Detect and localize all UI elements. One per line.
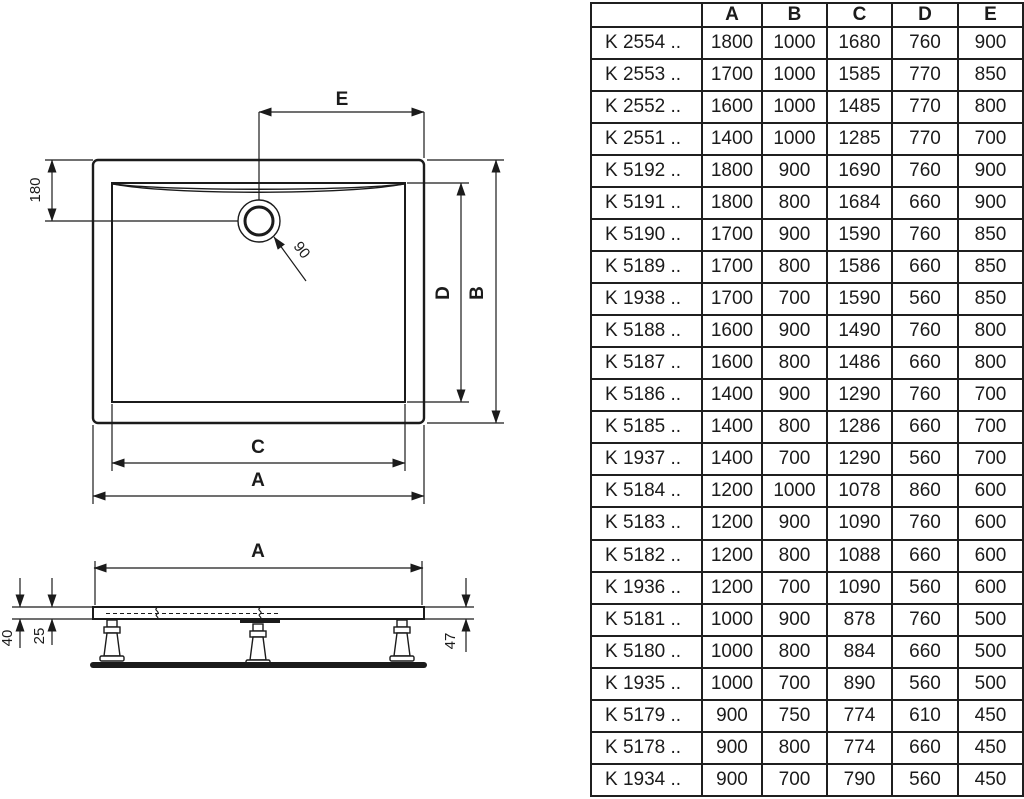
value-cell: 774 — [827, 732, 892, 764]
value-cell: 900 — [762, 155, 827, 187]
model-cell: K 1934 .. — [591, 764, 702, 796]
value-cell: 760 — [892, 219, 958, 251]
value-cell: 760 — [892, 604, 958, 636]
value-cell: 800 — [762, 636, 827, 668]
table-row: K 5179 ..900750774610450 — [591, 700, 1023, 732]
value-cell: 790 — [827, 764, 892, 796]
value-cell: 1690 — [827, 155, 892, 187]
dim-label-180: 180 — [27, 177, 44, 202]
foot-left — [100, 620, 124, 661]
value-cell: 560 — [892, 283, 958, 315]
value-cell: 884 — [827, 636, 892, 668]
column-header: E — [958, 3, 1023, 27]
value-cell: 1700 — [702, 283, 762, 315]
corner-header-cell — [591, 3, 702, 27]
foot-right — [390, 620, 414, 661]
value-cell: 1590 — [827, 283, 892, 315]
model-cell: K 2551 .. — [591, 123, 702, 155]
technical-drawing: E 180 90 D B C — [0, 0, 588, 799]
value-cell: 1290 — [827, 443, 892, 475]
value-cell: 1285 — [827, 123, 892, 155]
value-cell: 860 — [892, 475, 958, 507]
table-row: K 1937 ..14007001290560700 — [591, 443, 1023, 475]
value-cell: 500 — [958, 636, 1023, 668]
table-body: K 2554 ..180010001680760900K 2553 ..1700… — [591, 27, 1023, 796]
table-row: K 5189 ..17008001586660850 — [591, 251, 1023, 283]
value-cell: 1680 — [827, 27, 892, 59]
side-view: A 40 25 — [0, 541, 474, 668]
value-cell: 800 — [762, 411, 827, 443]
model-cell: K 5179 .. — [591, 700, 702, 732]
value-cell: 760 — [892, 155, 958, 187]
column-header: B — [762, 3, 827, 27]
drain-outlet — [240, 619, 280, 623]
value-cell: 760 — [892, 315, 958, 347]
value-cell: 1700 — [702, 219, 762, 251]
value-cell: 700 — [762, 764, 827, 796]
model-cell: K 5183 .. — [591, 507, 702, 539]
value-cell: 850 — [958, 59, 1023, 91]
value-cell: 770 — [892, 91, 958, 123]
model-cell: K 5187 .. — [591, 347, 702, 379]
model-cell: K 1936 .. — [591, 572, 702, 604]
table-row: K 5183 ..12009001090760600 — [591, 507, 1023, 539]
value-cell: 1400 — [702, 411, 762, 443]
value-cell: 500 — [958, 668, 1023, 700]
value-cell: 1485 — [827, 91, 892, 123]
value-cell: 700 — [958, 123, 1023, 155]
page: E 180 90 D B C — [0, 0, 1024, 799]
value-cell: 450 — [958, 764, 1023, 796]
value-cell: 700 — [762, 443, 827, 475]
value-cell: 1078 — [827, 475, 892, 507]
value-cell: 900 — [702, 732, 762, 764]
value-cell: 1000 — [762, 475, 827, 507]
value-cell: 1400 — [702, 379, 762, 411]
table-row: K 2552 ..160010001485770800 — [591, 91, 1023, 123]
value-cell: 560 — [892, 764, 958, 796]
value-cell: 1000 — [762, 59, 827, 91]
value-cell: 750 — [762, 700, 827, 732]
value-cell: 660 — [892, 411, 958, 443]
dim-label-A-side: A — [251, 541, 265, 562]
model-cell: K 1935 .. — [591, 668, 702, 700]
table-row: K 1938 ..17007001590560850 — [591, 283, 1023, 315]
value-cell: 700 — [762, 668, 827, 700]
value-cell: 1200 — [702, 572, 762, 604]
value-cell: 660 — [892, 732, 958, 764]
model-cell: K 5188 .. — [591, 315, 702, 347]
table-row: K 5180 ..1000800884660500 — [591, 636, 1023, 668]
value-cell: 600 — [958, 475, 1023, 507]
header-row: ABCDE — [591, 3, 1023, 27]
value-cell: 1000 — [762, 27, 827, 59]
value-cell: 800 — [762, 347, 827, 379]
dim-label-25: 25 — [31, 628, 48, 645]
value-cell: 700 — [762, 572, 827, 604]
value-cell: 800 — [762, 732, 827, 764]
value-cell: 850 — [958, 219, 1023, 251]
value-cell: 1600 — [702, 347, 762, 379]
value-cell: 770 — [892, 123, 958, 155]
value-cell: 1090 — [827, 572, 892, 604]
value-cell: 774 — [827, 700, 892, 732]
model-cell: K 5192 .. — [591, 155, 702, 187]
table-row: K 2553 ..170010001585770850 — [591, 59, 1023, 91]
value-cell: 600 — [958, 507, 1023, 539]
value-cell: 660 — [892, 251, 958, 283]
table-row: K 5187 ..16008001486660800 — [591, 347, 1023, 379]
value-cell: 660 — [892, 540, 958, 572]
value-cell: 760 — [892, 379, 958, 411]
table-row: K 5184 ..120010001078860600 — [591, 475, 1023, 507]
table-row: K 5181 ..1000900878760500 — [591, 604, 1023, 636]
value-cell: 1090 — [827, 507, 892, 539]
value-cell: 900 — [702, 700, 762, 732]
value-cell: 560 — [892, 443, 958, 475]
dim-label-A: A — [251, 470, 265, 491]
value-cell: 760 — [892, 507, 958, 539]
value-cell: 1200 — [702, 540, 762, 572]
foot-center — [246, 624, 270, 665]
value-cell: 700 — [762, 283, 827, 315]
table-row: K 2554 ..180010001680760900 — [591, 27, 1023, 59]
model-cell: K 5186 .. — [591, 379, 702, 411]
value-cell: 900 — [762, 315, 827, 347]
value-cell: 1585 — [827, 59, 892, 91]
value-cell: 700 — [958, 411, 1023, 443]
model-cell: K 2553 .. — [591, 59, 702, 91]
value-cell: 1800 — [702, 27, 762, 59]
model-cell: K 5182 .. — [591, 540, 702, 572]
column-header: D — [892, 3, 958, 27]
table-row: K 5192 ..18009001690760900 — [591, 155, 1023, 187]
value-cell: 1400 — [702, 443, 762, 475]
table-row: K 1936 ..12007001090560600 — [591, 572, 1023, 604]
table-row: K 5178 ..900800774660450 — [591, 732, 1023, 764]
value-cell: 1088 — [827, 540, 892, 572]
value-cell: 800 — [958, 315, 1023, 347]
value-cell: 900 — [958, 187, 1023, 219]
value-cell: 900 — [762, 379, 827, 411]
model-cell: K 1938 .. — [591, 283, 702, 315]
value-cell: 660 — [892, 187, 958, 219]
value-cell: 700 — [958, 379, 1023, 411]
value-cell: 1000 — [702, 604, 762, 636]
dim-label-E: E — [336, 89, 349, 110]
value-cell: 1000 — [762, 91, 827, 123]
table-row: K 5185 ..14008001286660700 — [591, 411, 1023, 443]
value-cell: 1200 — [702, 475, 762, 507]
table-row: K 5190 ..17009001590760850 — [591, 219, 1023, 251]
dim-label-B: B — [467, 286, 488, 300]
value-cell: 1490 — [827, 315, 892, 347]
model-cell: K 2554 .. — [591, 27, 702, 59]
model-cell: K 5180 .. — [591, 636, 702, 668]
value-cell: 850 — [958, 283, 1023, 315]
value-cell: 600 — [958, 572, 1023, 604]
value-cell: 900 — [762, 604, 827, 636]
model-cell: K 5184 .. — [591, 475, 702, 507]
value-cell: 610 — [892, 700, 958, 732]
value-cell: 1290 — [827, 379, 892, 411]
value-cell: 878 — [827, 604, 892, 636]
value-cell: 1684 — [827, 187, 892, 219]
table-row: K 5191 ..18008001684660900 — [591, 187, 1023, 219]
value-cell: 900 — [958, 155, 1023, 187]
value-cell: 800 — [762, 251, 827, 283]
table-row: K 5188 ..16009001490760800 — [591, 315, 1023, 347]
value-cell: 1000 — [702, 668, 762, 700]
value-cell: 900 — [958, 27, 1023, 59]
table-row: K 2551 ..140010001285770700 — [591, 123, 1023, 155]
value-cell: 1200 — [702, 507, 762, 539]
value-cell: 900 — [762, 219, 827, 251]
value-cell: 760 — [892, 27, 958, 59]
value-cell: 1800 — [702, 187, 762, 219]
value-cell: 600 — [958, 540, 1023, 572]
value-cell: 660 — [892, 636, 958, 668]
value-cell: 800 — [958, 347, 1023, 379]
value-cell: 450 — [958, 700, 1023, 732]
model-cell: K 5190 .. — [591, 219, 702, 251]
model-cell: K 5178 .. — [591, 732, 702, 764]
value-cell: 660 — [892, 347, 958, 379]
value-cell: 560 — [892, 668, 958, 700]
top-view: E 180 90 D B C — [27, 89, 504, 504]
model-cell: K 5181 .. — [591, 604, 702, 636]
value-cell: 1700 — [702, 251, 762, 283]
value-cell: 1590 — [827, 219, 892, 251]
model-cell: K 5189 .. — [591, 251, 702, 283]
value-cell: 1600 — [702, 91, 762, 123]
value-cell: 890 — [827, 668, 892, 700]
floor-bar — [90, 662, 427, 668]
value-cell: 1600 — [702, 315, 762, 347]
value-cell: 1486 — [827, 347, 892, 379]
dim-label-C: C — [251, 437, 265, 458]
value-cell: 850 — [958, 251, 1023, 283]
model-cell: K 5185 .. — [591, 411, 702, 443]
value-cell: 1000 — [762, 123, 827, 155]
spec-table: ABCDE K 2554 ..180010001680760900K 2553 … — [590, 2, 1024, 797]
dim-label-40: 40 — [0, 630, 16, 647]
value-cell: 560 — [892, 572, 958, 604]
table-row: K 5186 ..14009001290760700 — [591, 379, 1023, 411]
value-cell: 700 — [958, 443, 1023, 475]
value-cell: 450 — [958, 732, 1023, 764]
value-cell: 1800 — [702, 155, 762, 187]
dim-label-47: 47 — [442, 633, 459, 650]
value-cell: 800 — [762, 187, 827, 219]
table-row: K 5182 ..12008001088660600 — [591, 540, 1023, 572]
column-header: C — [827, 3, 892, 27]
value-cell: 1586 — [827, 251, 892, 283]
column-header: A — [702, 3, 762, 27]
value-cell: 1400 — [702, 123, 762, 155]
value-cell: 800 — [958, 91, 1023, 123]
model-cell: K 5191 .. — [591, 187, 702, 219]
value-cell: 1286 — [827, 411, 892, 443]
table-row: K 1934 ..900700790560450 — [591, 764, 1023, 796]
value-cell: 900 — [762, 507, 827, 539]
value-cell: 900 — [702, 764, 762, 796]
model-cell: K 1937 .. — [591, 443, 702, 475]
dim-label-D: D — [433, 286, 454, 300]
value-cell: 500 — [958, 604, 1023, 636]
table-row: K 1935 ..1000700890560500 — [591, 668, 1023, 700]
value-cell: 1700 — [702, 59, 762, 91]
value-cell: 800 — [762, 540, 827, 572]
value-cell: 770 — [892, 59, 958, 91]
value-cell: 1000 — [702, 636, 762, 668]
model-cell: K 2552 .. — [591, 91, 702, 123]
